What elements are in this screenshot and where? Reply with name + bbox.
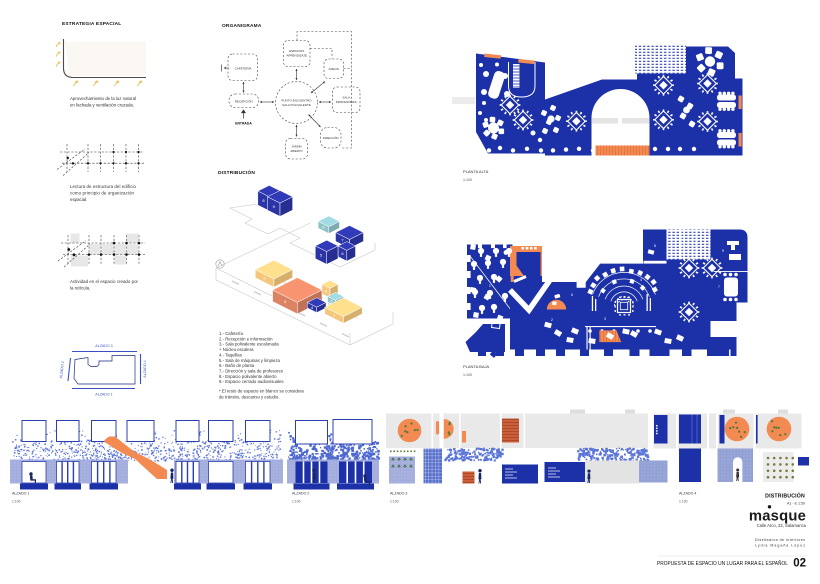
svg-text:ENTRADA: ENTRADA bbox=[235, 122, 252, 126]
svg-text:ORGANIGRAMA: ORGANIGRAMA bbox=[222, 23, 262, 29]
svg-text:ALZADO 1: ALZADO 1 bbox=[95, 393, 112, 397]
svg-text:ASEOS: ASEOS bbox=[329, 67, 339, 71]
svg-text:1:100: 1:100 bbox=[292, 500, 301, 504]
svg-text:ESPACIOS: ESPACIOS bbox=[289, 49, 304, 53]
svg-text:Aprovechamiento de la luz natu: Aprovechamiento de la luz natural bbox=[70, 96, 136, 101]
svg-text:9.- Espacio cerrado audiovisua: 9.- Espacio cerrado audiovisuales bbox=[219, 379, 284, 384]
svg-text:espacial.: espacial. bbox=[70, 197, 87, 202]
svg-text:de tránsito, descanso y estudi: de tránsito, descanso y estudio. bbox=[219, 395, 279, 400]
svg-text:SALA: SALA bbox=[342, 96, 350, 100]
svg-text:3: 3 bbox=[604, 317, 606, 321]
svg-text:CAFETERÍA: CAFETERÍA bbox=[235, 66, 252, 70]
svg-text:7.- Dirección y sala de profes: 7.- Dirección y sala de profesores bbox=[219, 368, 283, 373]
svg-text:ABIERTO: ABIERTO bbox=[290, 149, 303, 153]
svg-text:2: 2 bbox=[551, 318, 553, 322]
svg-text:2.- Recepción e información: 2.- Recepción e información bbox=[219, 336, 273, 341]
svg-text:PLANTA BAJA: PLANTA BAJA bbox=[463, 364, 489, 369]
svg-text:PROPUESTA DE ESPACIO UN LUGAR: PROPUESTA DE ESPACIO UN LUGAR PARA EL ES… bbox=[657, 560, 788, 567]
svg-text:Lydia Magaña López: Lydia Magaña López bbox=[755, 544, 805, 548]
svg-text:DISTRIBUCIÓN: DISTRIBUCIÓN bbox=[765, 492, 805, 500]
svg-text:ALZADO 1: ALZADO 1 bbox=[12, 492, 29, 496]
svg-text:1.- Cafetería: 1.- Cafetería bbox=[219, 331, 243, 336]
svg-text:1:100: 1:100 bbox=[463, 373, 472, 377]
svg-text:+ Núcleo escalera: + Núcleo escalera bbox=[219, 347, 254, 352]
svg-text:RECEPCIÓN: RECEPCIÓN bbox=[235, 98, 253, 103]
svg-text:7: 7 bbox=[718, 285, 720, 289]
svg-text:3.- Sala polivalente escalonad: 3.- Sala polivalente escalonada bbox=[219, 342, 279, 347]
svg-text:la retícula.: la retícula. bbox=[70, 286, 90, 291]
svg-text:1:100: 1:100 bbox=[12, 500, 21, 504]
svg-text:5: 5 bbox=[686, 244, 688, 248]
svg-text:ALZADO 3: ALZADO 3 bbox=[390, 492, 407, 496]
svg-text:1:100: 1:100 bbox=[390, 500, 399, 504]
svg-text:4: 4 bbox=[640, 278, 642, 282]
svg-text:JARDÍN: JARDÍN bbox=[291, 145, 301, 149]
svg-text:ALZADO 3: ALZADO 3 bbox=[95, 344, 112, 348]
svg-text:Calle Arco, 22, Salamanca: Calle Arco, 22, Salamanca bbox=[757, 523, 807, 528]
svg-text:Diseñadora de interiores: Diseñadora de interiores bbox=[755, 538, 805, 542]
svg-text:4.- Taquillas: 4.- Taquillas bbox=[219, 352, 242, 357]
svg-text:* El resto de espacio en blanc: * El resto de espacio en blanco se consi… bbox=[219, 389, 304, 394]
svg-text:9: 9 bbox=[722, 249, 724, 253]
svg-text:Lectura de estructura del edif: Lectura de estructura del edificio bbox=[70, 184, 137, 189]
svg-text:8.- Espacio polivalente abiert: 8.- Espacio polivalente abierto bbox=[219, 374, 277, 379]
svg-text:1:100: 1:100 bbox=[679, 500, 688, 504]
svg-text:1: 1 bbox=[489, 284, 491, 288]
svg-text:APRENDIZAJE: APRENDIZAJE bbox=[286, 54, 307, 58]
svg-text:8: 8 bbox=[654, 244, 656, 248]
svg-text:ESTRATEGIA ESPACIAL: ESTRATEGIA ESPACIAL bbox=[62, 21, 121, 27]
svg-text:SALA POLIVALENTE: SALA POLIVALENTE bbox=[282, 103, 311, 107]
svg-text:ALZADO 2: ALZADO 2 bbox=[292, 492, 309, 496]
svg-text:1:100: 1:100 bbox=[463, 178, 472, 182]
svg-text:02: 02 bbox=[793, 558, 806, 570]
svg-text:5.- Sala de máquinas y limpiez: 5.- Sala de máquinas y limpieza bbox=[219, 358, 281, 363]
svg-text:PLANTA ALTA: PLANTA ALTA bbox=[463, 169, 489, 174]
svg-text:ALZADO 4: ALZADO 4 bbox=[143, 360, 147, 377]
svg-text:como principio de organización: como principio de organización bbox=[70, 191, 135, 196]
svg-text:6.- Baño de planta: 6.- Baño de planta bbox=[219, 363, 255, 368]
svg-text:PROFESORES: PROFESORES bbox=[336, 100, 357, 104]
svg-text:Actividad en el espacio creado: Actividad en el espacio creado por bbox=[70, 279, 139, 284]
svg-text:A1 - E 1:50: A1 - E 1:50 bbox=[787, 502, 805, 506]
svg-text:ALZADO 4: ALZADO 4 bbox=[679, 492, 696, 496]
svg-text:PUNTO ENCUENTRO: PUNTO ENCUENTRO bbox=[281, 99, 312, 103]
svg-text:DIRECCIÓN: DIRECCIÓN bbox=[323, 135, 339, 140]
svg-text:6: 6 bbox=[571, 293, 573, 297]
svg-text:en fachada y ventilación cruza: en fachada y ventilación cruzada. bbox=[70, 103, 134, 108]
